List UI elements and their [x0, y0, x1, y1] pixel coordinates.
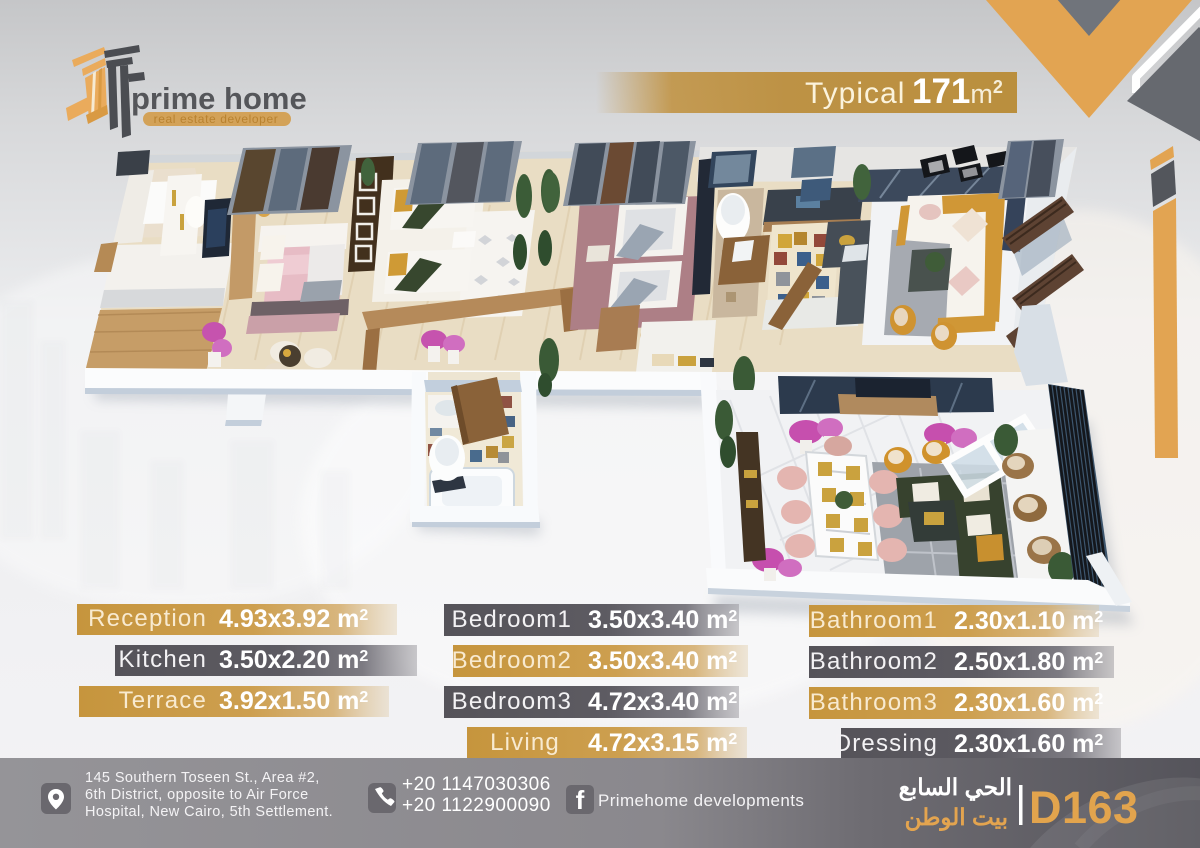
svg-text:2.30x1.60 m2: 2.30x1.60 m2 [954, 730, 1103, 758]
svg-text:2.30x1.60 m2: 2.30x1.60 m2 [954, 689, 1103, 717]
svg-text:Bathroom2: Bathroom2 [810, 648, 938, 675]
svg-text:Dressing: Dressing [834, 730, 938, 757]
svg-text:4.72x3.40 m2: 4.72x3.40 m2 [588, 688, 737, 716]
svg-text:Bedroom3: Bedroom3 [452, 688, 572, 715]
svg-text:Living: Living [490, 729, 560, 756]
svg-text:+20 1147030306: +20 1147030306 [402, 774, 551, 795]
svg-text:D163: D163 [1029, 782, 1139, 833]
svg-text:Primehome developments: Primehome developments [598, 791, 804, 810]
svg-text:f: f [576, 785, 585, 815]
svg-text:Kitchen: Kitchen [119, 646, 207, 673]
svg-text:Terrace: Terrace [119, 687, 207, 714]
svg-text:Bathroom3: Bathroom3 [810, 689, 938, 716]
svg-text:prime home: prime home [131, 81, 307, 116]
svg-text:Bathroom1: Bathroom1 [810, 607, 938, 634]
svg-text:3.50x2.20 m2: 3.50x2.20 m2 [219, 646, 368, 674]
svg-text:2.30x1.10 m2: 2.30x1.10 m2 [954, 607, 1103, 635]
svg-text:Hospital, New Cairo, 5th Settl: Hospital, New Cairo, 5th Settlement. [85, 804, 333, 820]
svg-text:real estate developer: real estate developer [154, 112, 279, 126]
svg-text:2.50x1.80 m2: 2.50x1.80 m2 [954, 648, 1103, 676]
svg-text:4.72x3.15 m2: 4.72x3.15 m2 [588, 729, 737, 757]
svg-text:Reception: Reception [88, 605, 207, 632]
svg-text:Typical: Typical [805, 77, 905, 110]
svg-text:Bedroom1: Bedroom1 [452, 606, 572, 633]
svg-text:3.92x1.50 m2: 3.92x1.50 m2 [219, 687, 368, 715]
svg-text:+20 1122900090: +20 1122900090 [402, 795, 551, 816]
svg-text:3.50x3.40 m2: 3.50x3.40 m2 [588, 647, 737, 675]
svg-text:6th District, opposite to Air: 6th District, opposite to Air Force [85, 787, 309, 803]
svg-text:3.50x3.40 m2: 3.50x3.40 m2 [588, 606, 737, 634]
svg-text:Bedroom2: Bedroom2 [452, 647, 572, 674]
svg-text:145 Southern Toseen St., Area: 145 Southern Toseen St., Area #2, [85, 770, 320, 786]
svg-text:الحي السابع: الحي السابع [899, 774, 1012, 802]
svg-text:4.93x3.92 m2: 4.93x3.92 m2 [219, 605, 368, 633]
svg-text:بيت الوطن: بيت الوطن [905, 804, 1008, 832]
